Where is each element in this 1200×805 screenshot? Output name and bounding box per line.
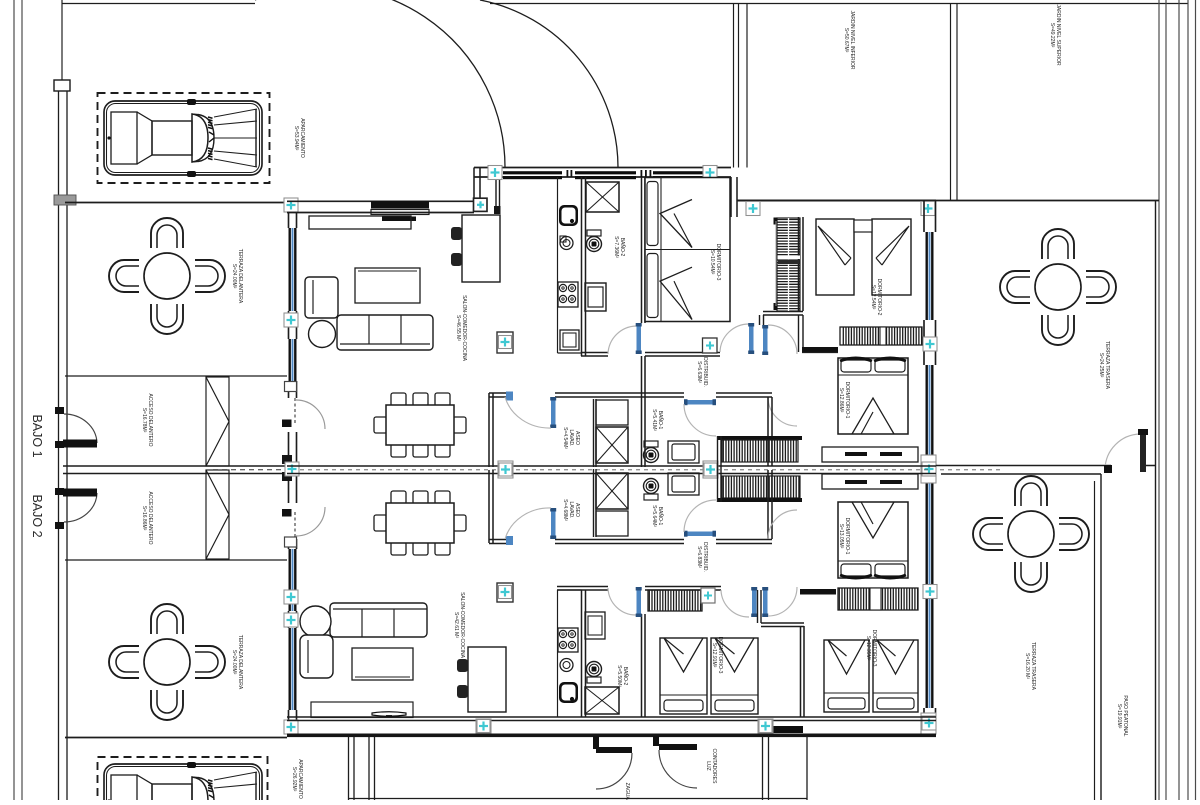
svg-text:S=19.91M²: S=19.91M²: [1116, 704, 1122, 729]
svg-text:S=6.63M²: S=6.63M²: [696, 361, 702, 383]
svg-text:S=26.92M²: S=26.92M²: [291, 767, 297, 792]
svg-text:S=12.54M²: S=12.54M²: [870, 285, 876, 310]
svg-text:S=4.68M²: S=4.68M²: [562, 499, 568, 521]
svg-text:BAJO 1: BAJO 1: [30, 414, 44, 457]
svg-text:BAÑO-2: BAÑO-2: [619, 238, 626, 257]
svg-text:S=7.36M²: S=7.36M²: [613, 236, 619, 258]
svg-text:S=53.94M²: S=53.94M²: [293, 126, 299, 151]
svg-text:BAÑO-1: BAÑO-1: [657, 411, 664, 430]
svg-text:S=46.55 M²: S=46.55 M²: [455, 315, 461, 341]
svg-text:S=12.35M²: S=12.35M²: [865, 636, 871, 661]
svg-text:S=16.20 M²: S=16.20 M²: [1024, 653, 1030, 679]
svg-text:BAÑO-1: BAÑO-1: [657, 507, 664, 526]
svg-text:S=16.86M²: S=16.86M²: [141, 506, 147, 531]
svg-text:S=50.67M²: S=50.67M²: [843, 28, 849, 53]
svg-text:S=4.54M²: S=4.54M²: [562, 427, 568, 449]
svg-text:S=5.41M²: S=5.41M²: [651, 409, 657, 431]
svg-text:S=13.05M²: S=13.05M²: [838, 524, 844, 549]
svg-text:S=42.61 M²: S=42.61 M²: [453, 612, 459, 638]
svg-text:LUZ: LUZ: [705, 761, 711, 770]
svg-text:S=10.54M²: S=10.54M²: [709, 250, 715, 275]
svg-text:S=24.25M²: S=24.25M²: [1098, 353, 1104, 378]
svg-text:S=6.83M²: S=6.83M²: [696, 546, 702, 568]
svg-text:BAJO 2: BAJO 2: [30, 494, 44, 537]
svg-text:S=16.78M²: S=16.78M²: [141, 408, 147, 433]
svg-text:ZAGUAN: ZAGUAN: [624, 783, 630, 800]
svg-text:S=49.22M²: S=49.22M²: [1049, 23, 1055, 48]
svg-text:BAÑO-2: BAÑO-2: [622, 667, 629, 686]
svg-text:S=24.00M²: S=24.00M²: [231, 650, 237, 675]
svg-text:S=24.00M²: S=24.00M²: [231, 264, 237, 289]
svg-text:S=12.86M²: S=12.86M²: [838, 388, 844, 413]
svg-text:S=5.50M²: S=5.50M²: [616, 665, 622, 687]
svg-text:S=5.64M²: S=5.64M²: [651, 505, 657, 527]
svg-text:S=12.91M²: S=12.91M²: [711, 643, 717, 668]
